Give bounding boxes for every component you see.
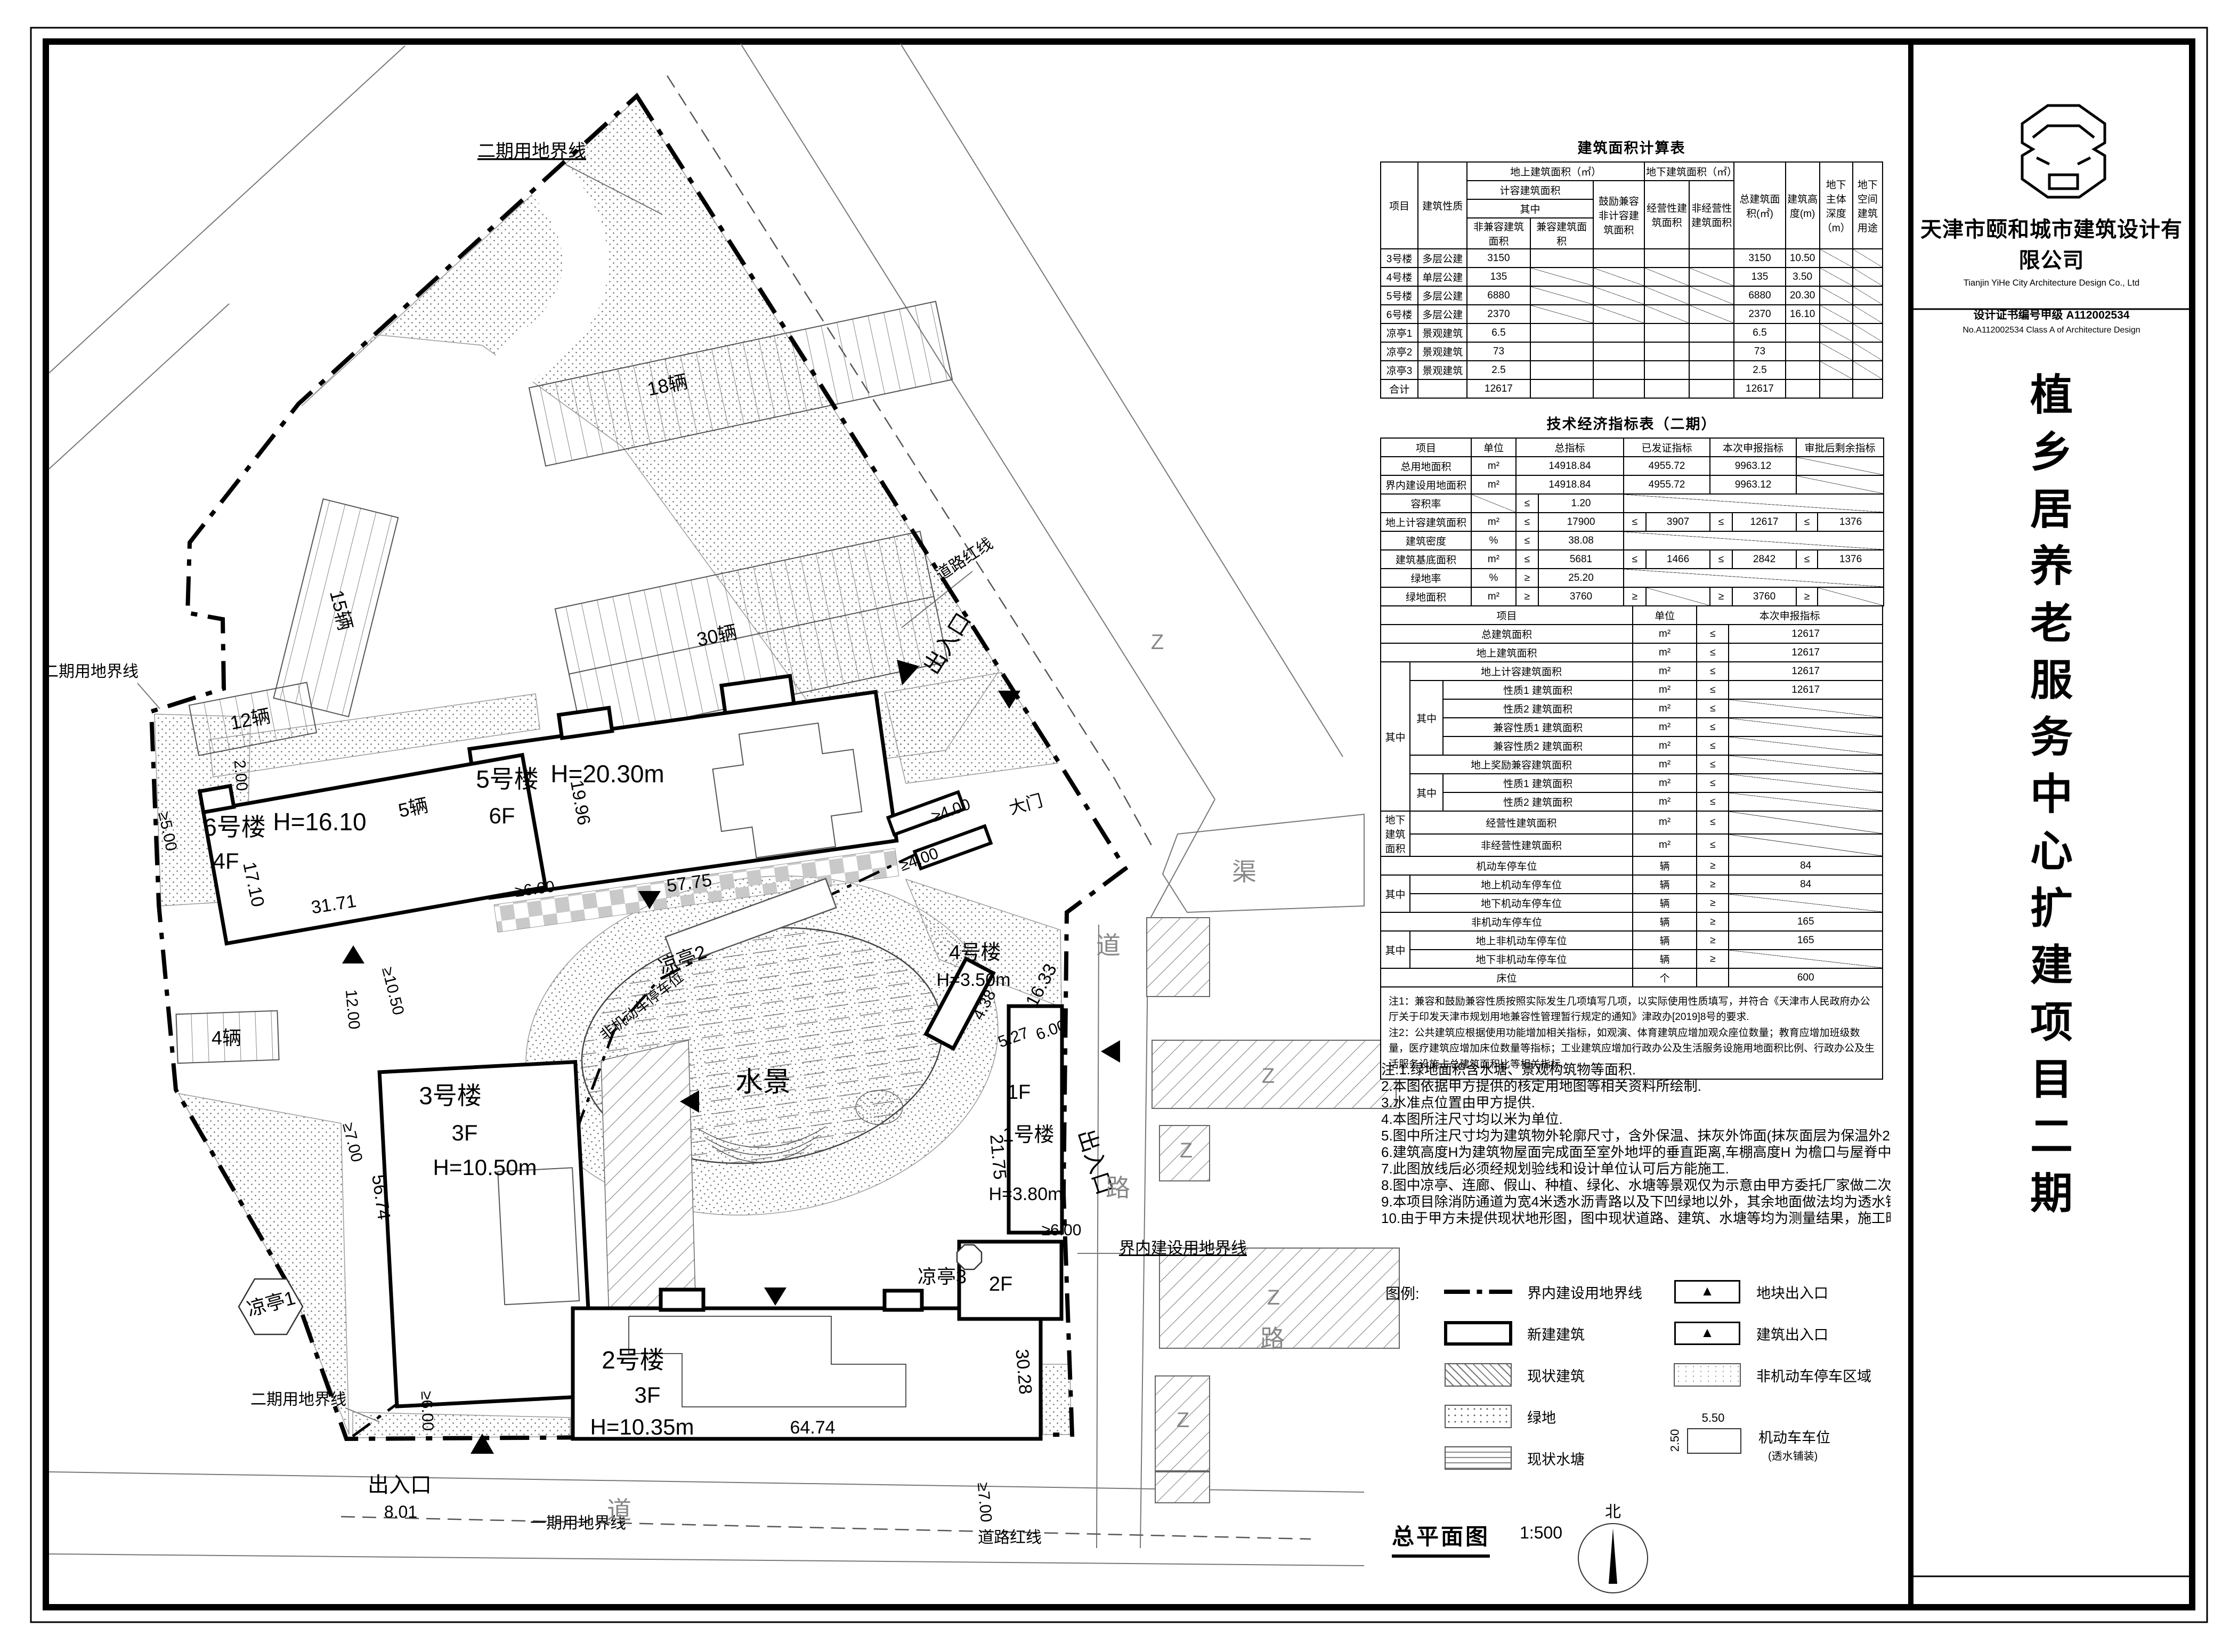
plan-label: 道路红线 xyxy=(978,1529,1042,1546)
table-cell: 辆 xyxy=(1633,912,1697,931)
table-cell: ≤ xyxy=(1697,834,1729,857)
table-cell: ≤ xyxy=(1516,494,1538,513)
table-cell xyxy=(1689,379,1734,398)
table-cell xyxy=(1624,569,1884,587)
table-cell: ≥ xyxy=(1796,587,1818,606)
table-cell: 多层公建 xyxy=(1418,249,1467,268)
table-cell xyxy=(1689,323,1734,342)
table-cell: ≤ xyxy=(1796,513,1818,531)
legend-label: 界内建设用地界线 xyxy=(1527,1282,1642,1302)
legend-item: 非机动车停车区域 xyxy=(1673,1361,1871,1389)
project-title-char: 务 xyxy=(2030,710,2073,767)
table-cell: 12617 xyxy=(1729,643,1883,662)
plan-label: 道 xyxy=(607,1496,631,1524)
project-title-char: 建 xyxy=(2030,938,2073,995)
table-cell: 25.20 xyxy=(1538,569,1624,587)
table-cell: 6.5 xyxy=(1467,323,1530,342)
table-cell: m² xyxy=(1633,718,1697,736)
table-cell: ≤ xyxy=(1624,513,1646,531)
table-cell xyxy=(1820,268,1853,286)
note-line: 2.本图依据甲方提供的核定用地图等相关资料所绘制. xyxy=(1381,1078,1891,1095)
table-cell: ≥ xyxy=(1697,856,1729,875)
note-line: 10.由于甲方未提供现状地形图，图中现状道路、建筑、水塘等均为测量结果，施工时以… xyxy=(1381,1210,1891,1227)
table-cell: 9963.12 xyxy=(1710,457,1796,475)
table-cell: 12617 xyxy=(1732,513,1796,531)
plan-label: Z xyxy=(1262,1064,1275,1088)
table-cell: 床位 xyxy=(1381,968,1633,987)
table-cell: 地上计容建筑面积 xyxy=(1410,662,1633,681)
table-cell xyxy=(1786,323,1820,342)
indicator-table-title: 技术经济指标表（二期） xyxy=(1380,412,1883,433)
nonmotor-symbol-icon xyxy=(1674,1363,1741,1387)
table-cell: m² xyxy=(1471,475,1516,494)
table-cell xyxy=(1593,305,1644,323)
table-cell xyxy=(1624,531,1884,550)
parking-depth-dim: 2.50 xyxy=(1668,1429,1682,1452)
legend-label: 现状水塘 xyxy=(1527,1448,1585,1469)
table-cell xyxy=(1853,286,1883,305)
project-title-char: 目 xyxy=(2030,1052,2073,1109)
table-cell: ≤ xyxy=(1697,774,1729,792)
exist-symbol-icon xyxy=(1445,1363,1512,1387)
table-cell: 地上建筑面积 xyxy=(1381,643,1633,662)
table-cell: 性质2 建筑面积 xyxy=(1443,699,1633,718)
table-cell: 辆 xyxy=(1633,875,1697,894)
table-cell: 机动车停车位 xyxy=(1381,856,1633,875)
table-cell: 地下建筑面积（㎡） xyxy=(1644,162,1734,181)
table-cell: 性质1 建筑面积 xyxy=(1443,681,1633,699)
north-circle-icon xyxy=(1578,1523,1648,1593)
table-cell: ≥ xyxy=(1710,587,1732,606)
table-cell: 4955.72 xyxy=(1624,475,1710,494)
table-cell xyxy=(1530,379,1593,398)
plan-label: H=3.80m xyxy=(989,1184,1063,1204)
plan-label: 2F xyxy=(989,1273,1012,1295)
table-cell: 项目 xyxy=(1381,606,1633,625)
table-cell: 总建筑面积(㎡) xyxy=(1734,162,1785,249)
plan-label: ≥7.00 xyxy=(974,1481,995,1523)
note-line: 9.本项目除消防通道为宽4米透水沥青路以及下凹绿地以外，其余地面做法均为透水铺装 xyxy=(1381,1194,1891,1210)
site-entry-symbol-icon: ▲ xyxy=(1674,1280,1740,1303)
table-cell: 辆 xyxy=(1633,894,1697,912)
table-cell: m² xyxy=(1633,736,1697,755)
table-cell: 地下非机动车停车位 xyxy=(1410,950,1633,968)
table-cell: 135 xyxy=(1467,268,1530,286)
table-cell: ≤ xyxy=(1697,811,1729,834)
table-cell: 地下建筑面积 xyxy=(1381,811,1410,856)
table-cell: 1.20 xyxy=(1538,494,1624,513)
table-cell xyxy=(1530,305,1593,323)
table-cell xyxy=(1853,268,1883,286)
plan-label: H=10.50m xyxy=(433,1155,537,1180)
plan-label: 凉亭3 xyxy=(918,1266,967,1287)
table-cell xyxy=(1530,342,1593,361)
building-3 xyxy=(379,1062,593,1406)
table-cell xyxy=(1818,587,1884,606)
legend-left-column: 界内建设用地界线新建建筑现状建筑绿地现状水塘 xyxy=(1444,1278,1642,1486)
table-cell: 凉亭2 xyxy=(1381,342,1418,361)
note-line: 5.图中所注尺寸均为建筑物外轮廓尺寸，含外保温、抹灰外饰面(抹灰面层为保温外20… xyxy=(1381,1128,1891,1144)
plan-label: 3F xyxy=(451,1120,477,1145)
table-cell: 10.50 xyxy=(1786,249,1820,268)
table-cell: 兼容性质2 建筑面积 xyxy=(1443,736,1633,755)
table-cell xyxy=(1796,475,1884,494)
table-cell: 经营性建筑面积 xyxy=(1644,181,1689,249)
plan-label: Z xyxy=(1267,1286,1280,1309)
table-cell: m² xyxy=(1471,457,1516,475)
table-cell xyxy=(1593,249,1644,268)
table-cell xyxy=(1689,286,1734,305)
north-needle-icon xyxy=(1609,1528,1617,1584)
table-cell: m² xyxy=(1471,550,1516,569)
table-cell: ≤ xyxy=(1516,531,1538,550)
table-cell xyxy=(1729,834,1883,857)
table-cell: m² xyxy=(1633,625,1697,643)
note-line: 6.建筑高度H为建筑物屋面完成面至室外地坪的垂直距离,车棚高度H 为檐口与屋脊中… xyxy=(1381,1144,1891,1161)
table-cell xyxy=(1689,305,1734,323)
table-cell: ≤ xyxy=(1697,681,1729,699)
plan-label: 2号楼 xyxy=(602,1346,664,1374)
table-cell xyxy=(1729,950,1883,968)
table-cell xyxy=(1624,494,1884,513)
table-cell: ≤ xyxy=(1516,513,1538,531)
table-cell: 凉亭1 xyxy=(1381,323,1418,342)
project-title-char: 居 xyxy=(2030,482,2073,539)
table-cell: 165 xyxy=(1729,931,1883,950)
north-label: 北 xyxy=(1573,1499,1653,1522)
table-cell: 2.5 xyxy=(1467,361,1530,379)
table-cell xyxy=(1853,361,1883,379)
table-cell: 合计 xyxy=(1381,379,1418,398)
plan-label: Z xyxy=(1177,1408,1189,1432)
table-cell: 17900 xyxy=(1538,513,1624,531)
table-cell xyxy=(1689,361,1734,379)
table-cell: ≤ xyxy=(1697,718,1729,736)
plan-label: Z xyxy=(1151,630,1164,654)
table-cell: 5号楼 xyxy=(1381,286,1418,305)
table-cell: m² xyxy=(1633,834,1697,857)
table-cell: % xyxy=(1471,569,1516,587)
table-cell xyxy=(1786,361,1820,379)
plan-label: H=3.50m xyxy=(937,970,1011,990)
table-cell: ≥ xyxy=(1697,875,1729,894)
table-cell xyxy=(1729,792,1883,811)
plan-label: 4F xyxy=(213,848,239,873)
table-cell: 6.5 xyxy=(1734,323,1785,342)
table-cell: 84 xyxy=(1729,856,1883,875)
table-cell xyxy=(1853,249,1883,268)
table-cell xyxy=(1593,379,1644,398)
table-cell xyxy=(1729,718,1883,736)
table-cell: m² xyxy=(1633,662,1697,681)
table-cell: 性质1 建筑面积 xyxy=(1443,774,1633,792)
legend-item: 新建建筑 xyxy=(1444,1319,1642,1347)
table-cell: 地上非机动车停车位 xyxy=(1410,931,1633,950)
project-title-char: 期 xyxy=(2030,1166,2073,1223)
project-title-char: 项 xyxy=(2030,995,2073,1052)
table-cell xyxy=(1593,342,1644,361)
table-cell: ≤ xyxy=(1697,755,1729,774)
table-cell: ≤ xyxy=(1796,550,1818,569)
table-cell: 2370 xyxy=(1467,305,1530,323)
table-cell: ≤ xyxy=(1697,792,1729,811)
plan-label: Z xyxy=(1180,1139,1193,1162)
table-cell: 项目 xyxy=(1381,162,1418,249)
table-cell: 辆 xyxy=(1633,856,1697,875)
general-notes: 注:1.绿地面积含水塘、景观构筑物等面积.2.本图依据甲方提供的核定用地图等相关… xyxy=(1381,1062,1891,1227)
table-cell xyxy=(1593,323,1644,342)
legend-item-parking: 5.502.50机动车车位(透水铺装) xyxy=(1673,1403,1871,1467)
legend-label: 机动车车位 xyxy=(1758,1426,1830,1447)
area-table-title: 建筑面积计算表 xyxy=(1380,136,1883,157)
table-cell xyxy=(1820,361,1853,379)
project-title-char: 中 xyxy=(2030,767,2073,824)
table-cell: 73 xyxy=(1734,342,1785,361)
table-cell: 绿地面积 xyxy=(1381,587,1471,606)
table-cell: 12617 xyxy=(1729,681,1883,699)
table-cell: ≤ xyxy=(1697,736,1729,755)
table-cell: 景观建筑 xyxy=(1418,361,1467,379)
table-cell: 2370 xyxy=(1734,305,1785,323)
table-cell: 12617 xyxy=(1734,379,1785,398)
note-line: 4.本图所注尺寸均以米为单位. xyxy=(1381,1111,1891,1128)
table-cell: 3760 xyxy=(1732,587,1796,606)
table-cell: ≥ xyxy=(1624,587,1646,606)
company-name-en: Tianjin YiHe City Architecture Design Co… xyxy=(1914,278,2189,288)
parking-stall-symbol-icon xyxy=(1687,1428,1741,1454)
table-cell: 4号楼 xyxy=(1381,268,1418,286)
table-cell: ≤ xyxy=(1624,550,1646,569)
table-cell: 135 xyxy=(1734,268,1785,286)
table-cell xyxy=(1644,249,1689,268)
plan-label: 30.28 xyxy=(1011,1348,1035,1395)
table-cell xyxy=(1471,494,1516,513)
drawing-scale: 1:500 xyxy=(1520,1523,1562,1543)
table-cell xyxy=(1418,379,1467,398)
table-cell: ≥ xyxy=(1697,931,1729,950)
pond-symbol-icon xyxy=(1445,1446,1512,1470)
table-cell xyxy=(1530,286,1593,305)
table-cell: 建筑密度 xyxy=(1381,531,1471,550)
plan-label: 二期用地界线 xyxy=(250,1391,346,1408)
table-cell xyxy=(1593,286,1644,305)
legend-label: 地块出入口 xyxy=(1756,1282,1828,1302)
legend-title: 图例: xyxy=(1385,1282,1420,1303)
table-cell xyxy=(1646,587,1710,606)
table-cell xyxy=(1530,268,1593,286)
plan-label: 渠 xyxy=(1232,858,1256,886)
table-cell: 辆 xyxy=(1633,950,1697,968)
legend-item: 界内建设用地界线 xyxy=(1444,1278,1642,1306)
table-cell: 1376 xyxy=(1818,550,1884,569)
table-cell: m² xyxy=(1633,755,1697,774)
table-cell: 非机动车停车位 xyxy=(1381,912,1633,931)
table-cell xyxy=(1644,305,1689,323)
table-cell: m² xyxy=(1633,681,1697,699)
plan-label: 大门 xyxy=(1007,791,1045,818)
plan-label: ≥6.00 xyxy=(418,1391,437,1431)
table-cell: 3.50 xyxy=(1786,268,1820,286)
table-cell: 计容建筑面积 xyxy=(1467,181,1593,199)
project-title-char: 养 xyxy=(2030,539,2073,596)
plan-label: 8.01 xyxy=(384,1502,417,1521)
note-line: 8.图中凉亭、连廊、假山、种植、绿化、水塘等景观仅为示意由甲方委托厂家做二次设计… xyxy=(1381,1177,1891,1194)
table-cell: 建筑高度(m) xyxy=(1786,162,1820,249)
plan-label: 4号楼 xyxy=(949,942,1001,964)
table-cell: 兼容性质1 建筑面积 xyxy=(1443,718,1633,736)
plan-label: 5号楼 xyxy=(476,765,539,793)
table-cell: 地上计容建筑面积 xyxy=(1381,513,1471,531)
table-cell xyxy=(1853,379,1883,398)
table-cell: 景观建筑 xyxy=(1418,323,1467,342)
table-cell: ≤ xyxy=(1697,662,1729,681)
tech-economic-table: 项目单位总指标已发证指标本次申报指标审批后剩余指标总用地面积m²14918.84… xyxy=(1380,438,1884,606)
table-cell: 已发证指标 xyxy=(1624,438,1710,457)
table-cell: 非兼容建筑面积 xyxy=(1467,218,1530,249)
project-title-char: 心 xyxy=(2030,824,2073,881)
company-name-cn: 天津市颐和城市建筑设计有限公司 xyxy=(1914,212,2189,274)
project-title-char: 乡 xyxy=(2030,425,2073,482)
declared-indicator-table: 项目单位本次申报指标总建筑面积m²≤12617地上建筑面积m²≤12617其中地… xyxy=(1380,605,1883,1080)
drawing-sheet: 二期用地界线二期用地界线二期用地界线道路红线出入口大门出入口出入口8.01一期用… xyxy=(0,0,2238,1652)
table-cell xyxy=(1729,736,1883,755)
table-cell: 1376 xyxy=(1818,513,1884,531)
cert-number-cn: 设计证书编号甲级 A112002534 xyxy=(1914,306,2189,322)
table-cell: 其中 xyxy=(1381,875,1410,912)
table-cell xyxy=(1820,379,1853,398)
table-cell: 2.5 xyxy=(1734,361,1785,379)
table-cell xyxy=(1796,457,1884,475)
table-cell: 12617 xyxy=(1729,662,1883,681)
table-cell: 14918.84 xyxy=(1516,457,1624,475)
table-cell: m² xyxy=(1633,699,1697,718)
table-cell: 总建筑面积 xyxy=(1381,625,1633,643)
project-title-char: 老 xyxy=(2030,596,2073,653)
table-cell: 其中 xyxy=(1467,199,1593,218)
plan-label: 界内建设用地界线 xyxy=(1119,1240,1247,1257)
project-title-char: 植 xyxy=(2030,368,2073,425)
table-cell: 建筑性质 xyxy=(1418,162,1467,249)
table-cell: 地上建筑面积（㎡） xyxy=(1467,162,1644,181)
table-cell xyxy=(1729,811,1883,834)
cert-number-en: No.A112002534 Class A of Architecture De… xyxy=(1914,326,2189,335)
table-cell: 辆 xyxy=(1633,931,1697,950)
table-cell: 73 xyxy=(1467,342,1530,361)
plan-label: 道路红线 xyxy=(933,535,996,585)
table-cell xyxy=(1689,342,1734,361)
table-cell xyxy=(1593,268,1644,286)
plan-label: ≥6.00 xyxy=(1042,1221,1082,1239)
plan-label: 路 xyxy=(1260,1325,1285,1353)
table-cell: 3760 xyxy=(1538,587,1624,606)
table-cell: m² xyxy=(1471,587,1516,606)
legend-item: ▲建筑出入口 xyxy=(1673,1319,1871,1347)
table-cell: 单位 xyxy=(1471,438,1516,457)
company-block: 天津市颐和城市建筑设计有限公司 Tianjin YiHe City Archit… xyxy=(1914,212,2189,335)
plan-label: 3F xyxy=(634,1382,660,1407)
table-cell xyxy=(1820,323,1853,342)
table-cell xyxy=(1820,286,1853,305)
table-cell: 单层公建 xyxy=(1418,268,1467,286)
table-cell: ≤ xyxy=(1710,550,1732,569)
note-line: 3.水准点位置由甲方提供. xyxy=(1381,1095,1891,1111)
table-cell xyxy=(1530,361,1593,379)
new-symbol-icon xyxy=(1444,1321,1512,1346)
table-cell xyxy=(1530,249,1593,268)
note-line: 注:1.绿地面积含水塘、景观构筑物等面积. xyxy=(1381,1062,1891,1078)
company-logo-icon xyxy=(2022,106,2105,197)
table-cell: 地下机动车停车位 xyxy=(1410,894,1633,912)
legend-label: 绿地 xyxy=(1527,1406,1556,1427)
table-cell xyxy=(1644,268,1689,286)
plan-label: 2.00 xyxy=(230,759,250,792)
table-cell: 非经营性建筑面积 xyxy=(1410,834,1633,857)
table-cell: 3907 xyxy=(1646,513,1710,531)
boundary-symbol-icon xyxy=(1444,1290,1512,1294)
plan-label: 6F xyxy=(489,803,515,828)
table-cell: 1466 xyxy=(1646,550,1710,569)
table-cell: 本次申报指标 xyxy=(1710,438,1796,457)
table-cell: 9963.12 xyxy=(1710,475,1796,494)
table-cell: 地上奖励兼容建筑面积 xyxy=(1410,755,1633,774)
table-cell xyxy=(1729,774,1883,792)
table-cell: m² xyxy=(1633,643,1697,662)
drawing-name: 总平面图 xyxy=(1392,1519,1490,1558)
table-cell: 其中 xyxy=(1381,931,1410,968)
table-cell xyxy=(1786,342,1820,361)
table-cell xyxy=(1729,699,1883,718)
plan-label: 出入口 xyxy=(368,1473,432,1497)
table-cell xyxy=(1644,342,1689,361)
legend-item: 现状建筑 xyxy=(1444,1361,1642,1389)
plan-footer: 总平面图 1:500 北 xyxy=(1392,1493,1765,1610)
table-cell: 凉亭3 xyxy=(1381,361,1418,379)
plan-label: 21.75 xyxy=(986,1133,1010,1180)
table-cell xyxy=(1729,894,1883,912)
table-cell: ≥ xyxy=(1516,569,1538,587)
plan-label: H=16.10 xyxy=(273,808,366,836)
table-cell xyxy=(1689,268,1734,286)
table-cell: ≤ xyxy=(1710,513,1732,531)
table-cell: 景观建筑 xyxy=(1418,342,1467,361)
table-cell: 6号楼 xyxy=(1381,305,1418,323)
legend-item: ▲地块出入口 xyxy=(1673,1278,1871,1306)
legend-label: 建筑出入口 xyxy=(1756,1323,1828,1344)
plan-label: 6号楼 xyxy=(203,813,266,841)
table-cell: 经营性建筑面积 xyxy=(1410,811,1633,834)
table-cell xyxy=(1853,323,1883,342)
table-cell: 项目 xyxy=(1381,438,1471,457)
table-cell: 14918.84 xyxy=(1516,475,1624,494)
plan-label: ≥7.00 xyxy=(339,1121,366,1164)
table-cell xyxy=(1697,968,1729,987)
table-cell xyxy=(1689,249,1734,268)
note-line: 7.此图放线后必须经规划验线和设计单位认可后方能施工. xyxy=(1381,1161,1891,1177)
legend-label: 非机动车停车区域 xyxy=(1756,1365,1871,1386)
table-cell: ≥ xyxy=(1516,587,1538,606)
table-cell: 20.30 xyxy=(1786,286,1820,305)
table-cell: 总用地面积 xyxy=(1381,457,1471,475)
table-cell: % xyxy=(1471,531,1516,550)
table-cell: 2842 xyxy=(1732,550,1796,569)
table-cell xyxy=(1820,305,1853,323)
north-arrow: 北 xyxy=(1573,1499,1653,1589)
legend-item: 绿地 xyxy=(1444,1403,1642,1430)
project-title-char: 扩 xyxy=(2030,881,2073,938)
table-cell: ≤ xyxy=(1697,643,1729,662)
table-cell xyxy=(1853,342,1883,361)
tables-column: 建筑面积计算表 项目建筑性质地上建筑面积（㎡）地下建筑面积（㎡）总建筑面积(㎡)… xyxy=(1380,134,1883,1094)
